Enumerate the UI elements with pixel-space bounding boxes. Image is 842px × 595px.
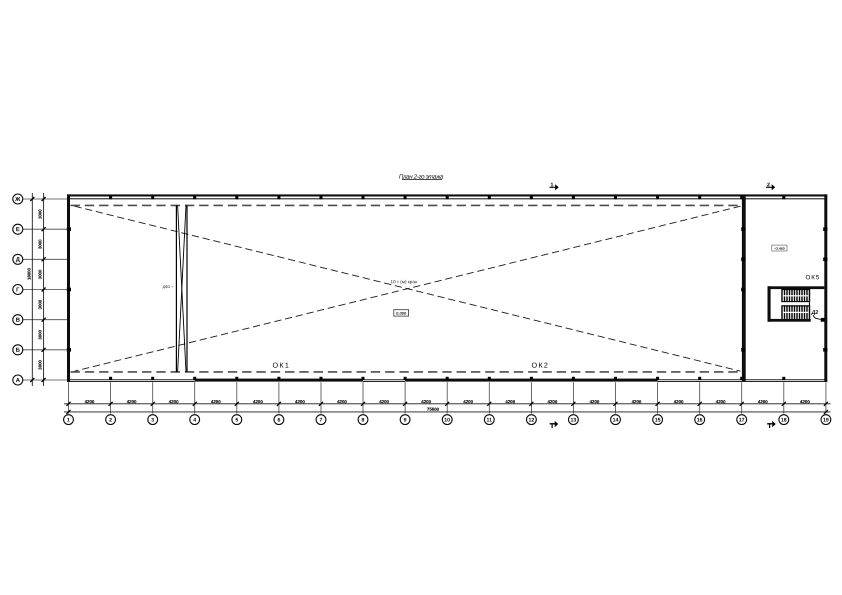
svg-text:10: 10 [444,417,450,423]
svg-text:Б: Б [16,348,20,354]
svg-text:4200: 4200 [85,399,95,404]
svg-text:3000: 3000 [38,209,43,219]
svg-text:Е: Е [16,227,20,233]
svg-text:4200: 4200 [421,399,431,404]
svg-text:4200: 4200 [295,399,305,404]
svg-text:3000: 3000 [38,329,43,339]
svg-text:4200: 4200 [463,399,473,404]
svg-text:11: 11 [487,417,493,423]
svg-text:3000: 3000 [38,239,43,249]
svg-text:18: 18 [781,417,787,423]
svg-text:3000: 3000 [38,299,43,309]
svg-text:14: 14 [613,417,619,423]
svg-text:ОК1: ОК1 [272,361,290,370]
svg-text:4200: 4200 [632,399,642,404]
svg-text:8: 8 [362,417,365,423]
svg-text:75600: 75600 [427,407,440,412]
svg-text:Ж: Ж [14,197,21,203]
svg-text:19: 19 [823,417,829,423]
svg-text:4200: 4200 [758,399,768,404]
svg-text:3000: 3000 [38,269,43,279]
svg-text:4200: 4200 [800,399,810,404]
svg-text:15: 15 [655,417,661,423]
svg-text:16: 16 [697,417,703,423]
svg-text:3000: 3000 [38,360,43,370]
svg-text:4: 4 [193,417,196,423]
svg-text:12: 12 [529,417,535,423]
svg-text:4200: 4200 [716,399,726,404]
svg-text:4200: 4200 [548,399,558,404]
svg-text:Д2: Д2 [811,310,819,316]
svg-text:1: 1 [67,417,70,423]
svg-text:2: 2 [109,417,112,423]
svg-text:0.000: 0.000 [396,311,407,316]
svg-text:ДФ3 +: ДФ3 + [162,284,173,289]
svg-text:7: 7 [320,417,323,423]
svg-text:4200: 4200 [379,399,389,404]
svg-text:13: 13 [571,417,577,423]
svg-text:ОК5: ОК5 [805,274,820,281]
svg-text:3: 3 [151,417,154,423]
svg-text:4200: 4200 [590,399,600,404]
svg-text:4200: 4200 [211,399,221,404]
svg-text:4200: 4200 [253,399,263,404]
svg-text:+2.460: +2.460 [774,247,785,251]
svg-text:18000: 18000 [27,267,32,280]
svg-text:4200: 4200 [674,399,684,404]
svg-text:ОК2: ОК2 [531,361,549,370]
svg-text:17: 17 [739,417,745,423]
svg-text:4200: 4200 [127,399,137,404]
svg-text:5: 5 [235,417,238,423]
svg-text:4200: 4200 [505,399,515,404]
svg-text:В: В [16,318,20,324]
svg-text:10 т (м) кран: 10 т (м) кран [391,279,418,284]
svg-text:6: 6 [277,417,280,423]
svg-text:4200: 4200 [169,399,179,404]
svg-text:9: 9 [404,417,407,423]
svg-text:4200: 4200 [337,399,347,404]
